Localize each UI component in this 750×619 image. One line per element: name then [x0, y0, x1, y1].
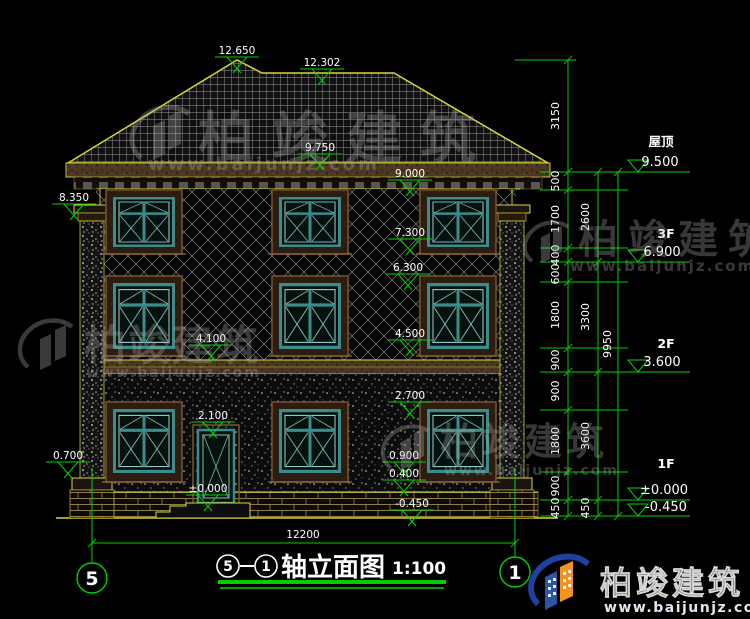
- level-name: 屋顶: [648, 134, 674, 149]
- watermark-site: www.baijunjz.com: [444, 463, 619, 479]
- plinth-brick-band: [76, 492, 538, 518]
- level-name: 2F: [657, 336, 674, 351]
- chain-dim: 1800: [549, 301, 562, 329]
- marker-label: 2.100: [198, 410, 228, 422]
- axis-number-left: 5: [85, 568, 98, 590]
- drawing-svg: 12.650 12.302 9.750 9.000 8.350 7.300 6.…: [0, 0, 750, 619]
- axis-number-right: 1: [508, 562, 521, 584]
- chain-dim: 450: [549, 498, 562, 519]
- dentil-band: [74, 177, 542, 189]
- drawing-title: 5 1 轴立面图 1:100: [217, 552, 446, 589]
- marker-label: -0.450: [395, 498, 429, 510]
- windows-3f: [102, 190, 500, 254]
- level-triangles: [628, 160, 648, 516]
- marker-label: 6.300: [393, 262, 423, 274]
- chain-dim: 9950: [601, 330, 614, 358]
- title-axis-end: 1: [261, 559, 271, 575]
- marker-label: 2.700: [395, 390, 425, 402]
- watermark-brand: 柏竣建筑: [440, 420, 608, 464]
- marker-label: ±0.000: [189, 483, 228, 495]
- title-underline-thin: [220, 587, 444, 589]
- marker-label: 0.400: [389, 468, 419, 480]
- cad-elevation-drawing: 12.650 12.302 9.750 9.000 8.350 7.300 6.…: [0, 0, 750, 619]
- title-underline-thick: [218, 580, 446, 584]
- level-value: -0.450: [645, 500, 687, 515]
- chain-dim: 600: [549, 264, 562, 285]
- title-scale: 1:100: [392, 559, 446, 579]
- chain-dim: 900: [549, 381, 562, 402]
- watermark-left: 柏竣建筑 www.baijunjz.com: [20, 321, 261, 381]
- level-value: 9.500: [641, 155, 678, 170]
- title-text: 轴立面图: [281, 552, 385, 583]
- level-name: 1F: [657, 456, 674, 471]
- watermark-logo-icon: [20, 321, 72, 370]
- overall-width-dim: 12200: [286, 529, 319, 541]
- marker-label: 12.650: [219, 45, 256, 57]
- watermark-site: www.baijunjz.com: [148, 154, 380, 175]
- chain-dim: 900: [549, 350, 562, 371]
- title-axis-start: 5: [223, 559, 233, 575]
- logo-site: www.baijunjz.com: [604, 600, 750, 616]
- marker-label: 7.300: [395, 227, 425, 239]
- level-value: ±0.000: [640, 483, 688, 498]
- marker-label: 4.500: [395, 328, 425, 340]
- chain-dim: 3150: [549, 102, 562, 130]
- chain-dim: 3300: [579, 303, 592, 331]
- logo-brand: 柏竣建筑: [600, 564, 744, 602]
- company-logo: 柏竣建筑 www.baijunjz.com: [531, 557, 750, 616]
- marker-label: 8.350: [59, 192, 89, 204]
- logo-mark-icon: [531, 557, 588, 610]
- marker-label: 0.700: [53, 450, 83, 462]
- watermark-site: www.baijunjz.com: [570, 257, 750, 275]
- chain-dim: 500: [549, 171, 562, 192]
- watermark-brand: 柏竣建筑: [84, 321, 260, 370]
- level-value: 3.600: [643, 355, 680, 370]
- marker-label: 12.302: [304, 57, 341, 69]
- watermark-site: www.baijunjz.com: [86, 365, 261, 381]
- chain-dim: 450: [579, 498, 592, 519]
